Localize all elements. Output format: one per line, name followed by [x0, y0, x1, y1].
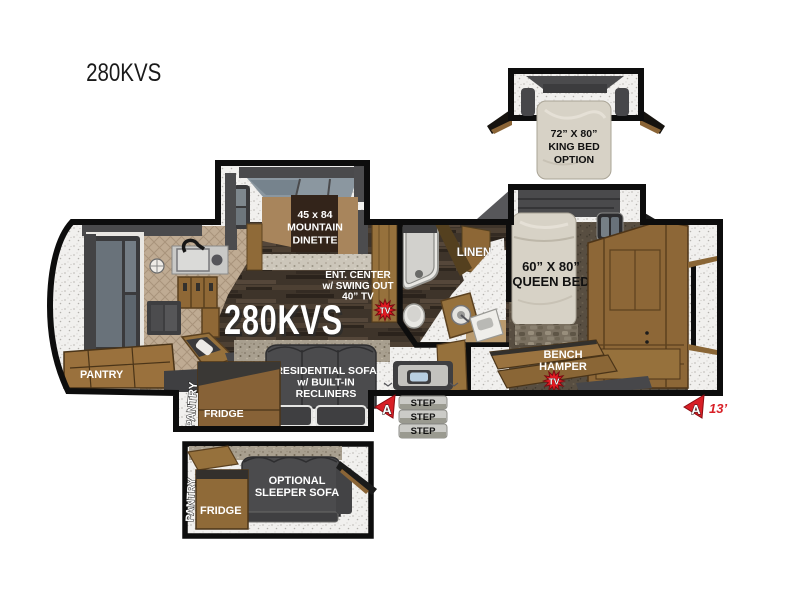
- svg-text:BENCH: BENCH: [543, 349, 582, 361]
- svg-text:72” X 80”: 72” X 80”: [551, 128, 598, 140]
- svg-text:13’: 13’: [709, 401, 727, 416]
- svg-text:TV: TV: [380, 306, 391, 316]
- svg-text:w/ SWING OUT: w/ SWING OUT: [321, 281, 393, 292]
- svg-text:MOUNTAIN: MOUNTAIN: [287, 222, 343, 234]
- svg-text:OPTION: OPTION: [554, 154, 594, 166]
- svg-text:A: A: [691, 402, 701, 417]
- svg-text:RESIDENTIAL SOFA: RESIDENTIAL SOFA: [275, 365, 377, 377]
- svg-text:STEP: STEP: [411, 398, 436, 409]
- svg-text:HAMPER: HAMPER: [539, 361, 587, 373]
- svg-text:RECLINERS: RECLINERS: [296, 388, 357, 400]
- svg-text:w/ BUILT-IN: w/ BUILT-IN: [296, 377, 355, 389]
- svg-text:280KVS: 280KVS: [86, 58, 161, 86]
- svg-text:FRIDGE: FRIDGE: [204, 408, 244, 420]
- svg-text:TV: TV: [549, 377, 560, 387]
- svg-text:PANTRY: PANTRY: [80, 369, 124, 381]
- svg-text:PANTRY: PANTRY: [184, 477, 198, 522]
- svg-text:40” TV: 40” TV: [342, 292, 374, 303]
- svg-text:A: A: [382, 402, 392, 417]
- svg-text:280KVS: 280KVS: [224, 296, 343, 343]
- svg-text:FRIDGE: FRIDGE: [200, 505, 242, 517]
- svg-text:STEP: STEP: [411, 426, 436, 437]
- svg-text:SLEEPER SOFA: SLEEPER SOFA: [255, 487, 339, 499]
- svg-text:KING BED: KING BED: [548, 141, 600, 153]
- svg-text:45 x 84: 45 x 84: [297, 209, 332, 221]
- svg-text:QUEEN BED: QUEEN BED: [512, 274, 589, 289]
- svg-text:STEP: STEP: [411, 412, 436, 423]
- svg-text:OPTIONAL: OPTIONAL: [269, 475, 326, 487]
- svg-text:ENT. CENTER: ENT. CENTER: [325, 270, 391, 281]
- svg-text:DINETTE: DINETTE: [293, 235, 338, 247]
- svg-text:60” X 80”: 60” X 80”: [522, 259, 580, 274]
